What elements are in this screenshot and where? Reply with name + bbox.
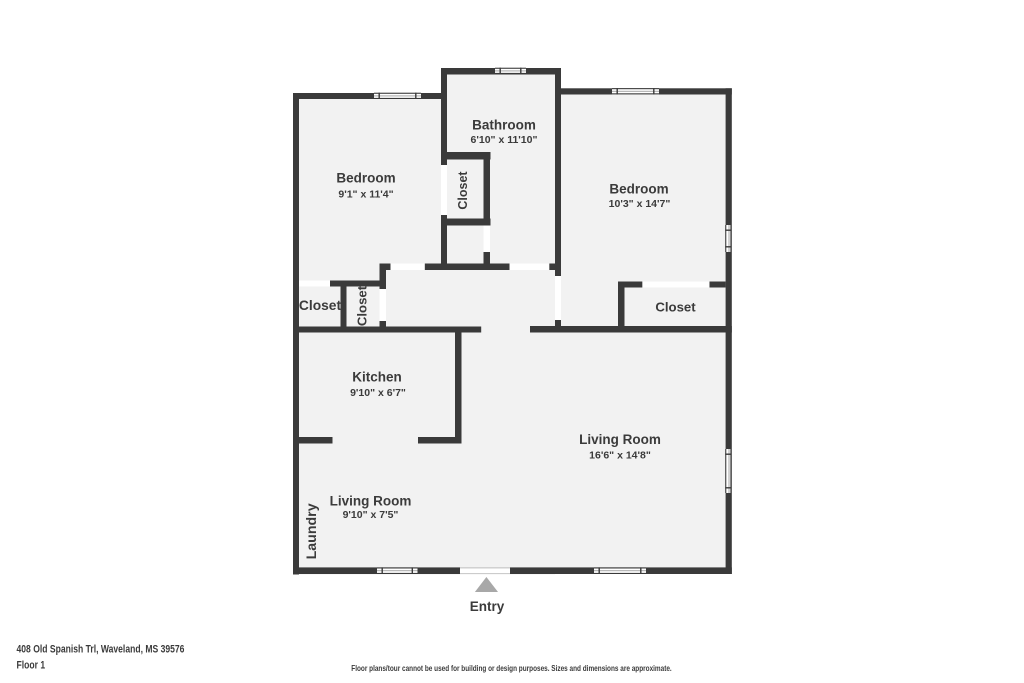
svg-text:Floor 1: Floor 1 xyxy=(17,660,46,672)
svg-text:6'10" x 11'10": 6'10" x 11'10" xyxy=(471,134,538,146)
svg-text:Bathroom: Bathroom xyxy=(472,118,536,133)
svg-text:Floor plans/tour cannot be use: Floor plans/tour cannot be used for buil… xyxy=(351,663,671,673)
svg-text:Living Room: Living Room xyxy=(330,494,412,509)
svg-text:Laundry: Laundry xyxy=(304,503,320,559)
svg-text:Entry: Entry xyxy=(470,599,505,614)
svg-text:Closet: Closet xyxy=(456,171,470,210)
svg-text:16'6" x 14'8": 16'6" x 14'8" xyxy=(589,450,651,462)
svg-text:408 Old Spanish Trl, Waveland,: 408 Old Spanish Trl, Waveland, MS 39576 xyxy=(17,644,185,656)
svg-text:Kitchen: Kitchen xyxy=(352,370,402,385)
svg-text:10'3" x 14'7": 10'3" x 14'7" xyxy=(609,198,671,210)
svg-text:Bedroom: Bedroom xyxy=(336,171,395,186)
svg-text:Closet: Closet xyxy=(655,300,696,315)
svg-text:9'1" x 11'4": 9'1" x 11'4" xyxy=(338,189,393,201)
svg-text:Living Room: Living Room xyxy=(579,432,661,447)
svg-text:Closet: Closet xyxy=(299,298,342,313)
svg-text:9'10" x 7'5": 9'10" x 7'5" xyxy=(343,509,399,521)
svg-text:9'10" x 6'7": 9'10" x 6'7" xyxy=(350,387,406,399)
svg-text:Bedroom: Bedroom xyxy=(609,182,668,197)
svg-text:Closet: Closet xyxy=(355,285,370,326)
